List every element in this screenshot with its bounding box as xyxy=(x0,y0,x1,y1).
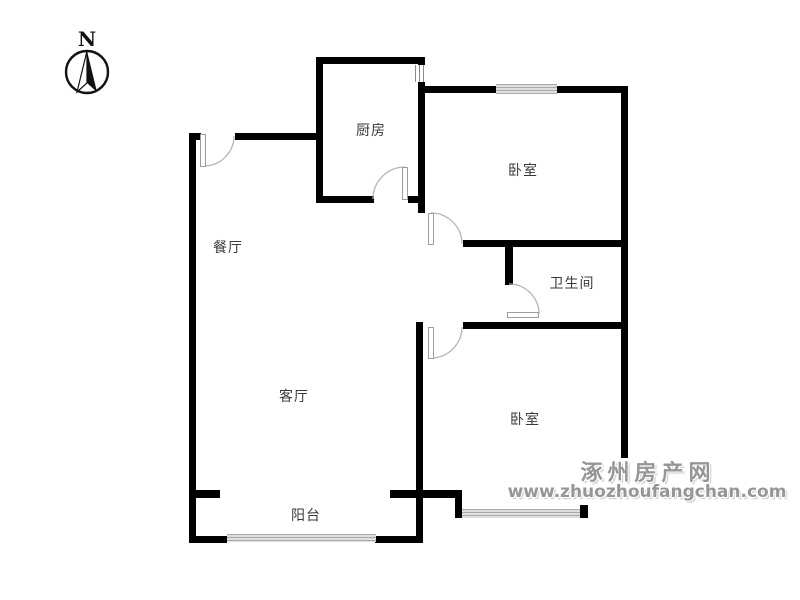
door-arc-bathroom xyxy=(509,284,539,314)
door-leaf-bedroom-south xyxy=(428,327,434,359)
room-label-bedroom-south: 卧室 xyxy=(510,409,540,429)
watermark-site-url: www.zhuozhoufangchan.com xyxy=(508,482,787,502)
wall-living-bottom-left xyxy=(189,490,220,498)
compass-needle-dark xyxy=(87,51,97,92)
compass-circle xyxy=(66,51,108,93)
window-bedroom-north xyxy=(496,84,557,94)
plan-overlay xyxy=(0,0,800,600)
wall-living-bottom-right xyxy=(390,490,462,498)
wall-bedroom-n-top-left xyxy=(418,86,496,93)
wall-kitchen-bottom-left xyxy=(316,196,374,203)
wall-bedroom-s-stub-right xyxy=(580,505,588,518)
wall-left-outer xyxy=(189,133,196,543)
room-label-kitchen: 厨房 xyxy=(356,120,386,140)
wall-bedroom-s-corner xyxy=(455,492,462,518)
wall-bedroom-n-top-right xyxy=(557,86,628,93)
room-label-bedroom-north: 卧室 xyxy=(508,160,538,180)
wall-balcony-bottom-left xyxy=(189,536,227,543)
wall-bedroom-n-bottom xyxy=(463,240,628,247)
wall-living-divider xyxy=(416,322,423,498)
wall-entry-top-right xyxy=(235,133,317,140)
compass-needle-light xyxy=(77,51,87,92)
wall-hall-bottom xyxy=(463,322,628,329)
door-arc-entry xyxy=(204,136,234,166)
door-arc-kitchen xyxy=(373,167,405,199)
door-leaf-bedroom-north xyxy=(428,213,434,245)
wall-balcony-bottom-right xyxy=(375,536,423,543)
room-label-balcony: 阳台 xyxy=(291,505,321,525)
window-balcony xyxy=(227,534,376,542)
wall-kitchen-top xyxy=(316,57,425,64)
wall-kitchen-bottom-nub xyxy=(408,196,418,203)
room-label-dining: 餐厅 xyxy=(213,237,243,257)
wall-bathroom-left xyxy=(505,247,513,285)
room-label-living: 客厅 xyxy=(279,386,309,406)
window-bedroom-south xyxy=(462,509,580,518)
room-label-bathroom: 卫生间 xyxy=(550,273,595,293)
wall-kitchen-left xyxy=(316,57,323,203)
door-arc-bedroom-south xyxy=(431,327,462,358)
door-leaf-bathroom xyxy=(507,312,539,318)
door-arc-bedroom-north xyxy=(431,213,462,244)
window-kitchen-vent xyxy=(415,65,427,82)
floor-plan: N 厨房 卧室 餐厅 卫生间 客厅 卧室 阳台 涿州房产网 www.zhuozh… xyxy=(0,0,800,600)
compass-north-label: N xyxy=(78,27,96,51)
wall-bedroom-n-left xyxy=(418,93,425,213)
wall-right-outer xyxy=(621,86,628,458)
door-leaf-kitchen xyxy=(402,167,408,200)
door-leaf-entry xyxy=(200,134,206,167)
